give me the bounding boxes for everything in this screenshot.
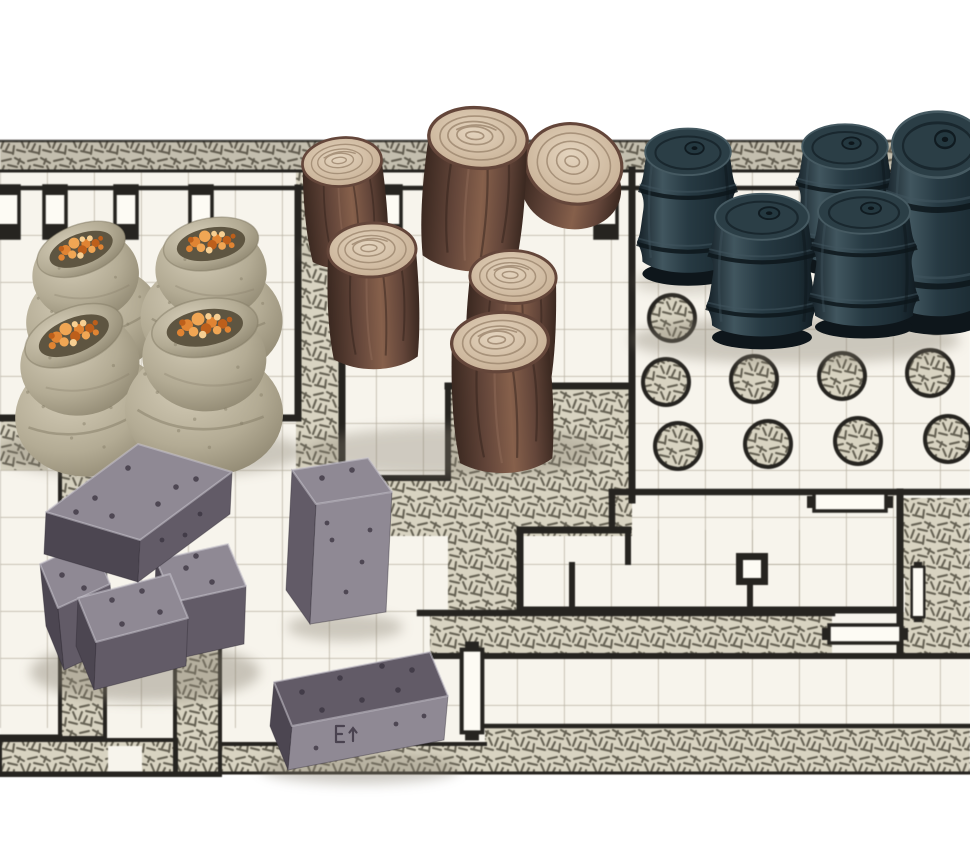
hammer-pit [173, 484, 179, 490]
hammer-pit [183, 565, 189, 571]
photo-stage [0, 0, 970, 842]
hammer-pit [319, 475, 325, 481]
hammer-pit [109, 597, 115, 603]
hammer-pit [183, 533, 188, 538]
barrel [706, 194, 818, 349]
door-symbol [462, 642, 483, 741]
hammer-pit [368, 528, 373, 533]
metal-ingot-standing-block [286, 458, 392, 624]
wood-log [448, 310, 557, 476]
hammer-pit [422, 714, 427, 719]
hammer-pit [409, 667, 415, 673]
hammer-pit [337, 675, 343, 681]
hammer-pit [73, 509, 79, 515]
hammer-pit [330, 538, 335, 543]
hammer-pit [198, 512, 203, 517]
door-symbol [807, 493, 893, 511]
pillar-symbol [835, 418, 881, 464]
hammer-pit [193, 553, 199, 559]
hammer-pit [325, 521, 330, 526]
pillar-symbol [907, 350, 953, 396]
hammer-pit [109, 513, 115, 519]
pillar-symbol [925, 416, 970, 462]
pillar-symbol [655, 423, 701, 469]
door-symbol [912, 562, 925, 622]
ingot-face-front [310, 492, 392, 624]
hammer-pit [359, 697, 365, 703]
hammer-pit [155, 501, 161, 507]
hammer-pit [379, 663, 385, 669]
door-symbol [822, 625, 908, 643]
hammer-pit [314, 746, 319, 751]
hammer-pit [193, 476, 199, 482]
hammer-pit [81, 585, 87, 591]
hammer-pit [119, 621, 125, 627]
hammer-pit [319, 707, 325, 713]
hammer-pit [59, 572, 65, 578]
barrel [809, 190, 919, 339]
hammer-pit [344, 590, 349, 595]
hammer-pit [394, 722, 399, 727]
hammer-pit [92, 495, 98, 501]
hammer-pit [395, 687, 401, 693]
hammer-pit [125, 465, 131, 471]
pillar-symbol [643, 359, 689, 405]
hammer-pit [139, 588, 145, 594]
wood-log [325, 221, 421, 370]
hammer-pit [209, 579, 215, 585]
miniatures-photo [0, 0, 970, 842]
hammer-pit [360, 560, 365, 565]
hammer-pit [160, 538, 165, 543]
pillar-symbol [745, 421, 791, 467]
hammer-pit [349, 467, 355, 473]
hammer-pit [157, 609, 163, 615]
hammer-pit [299, 689, 305, 695]
pilaster-symbol [0, 186, 19, 238]
